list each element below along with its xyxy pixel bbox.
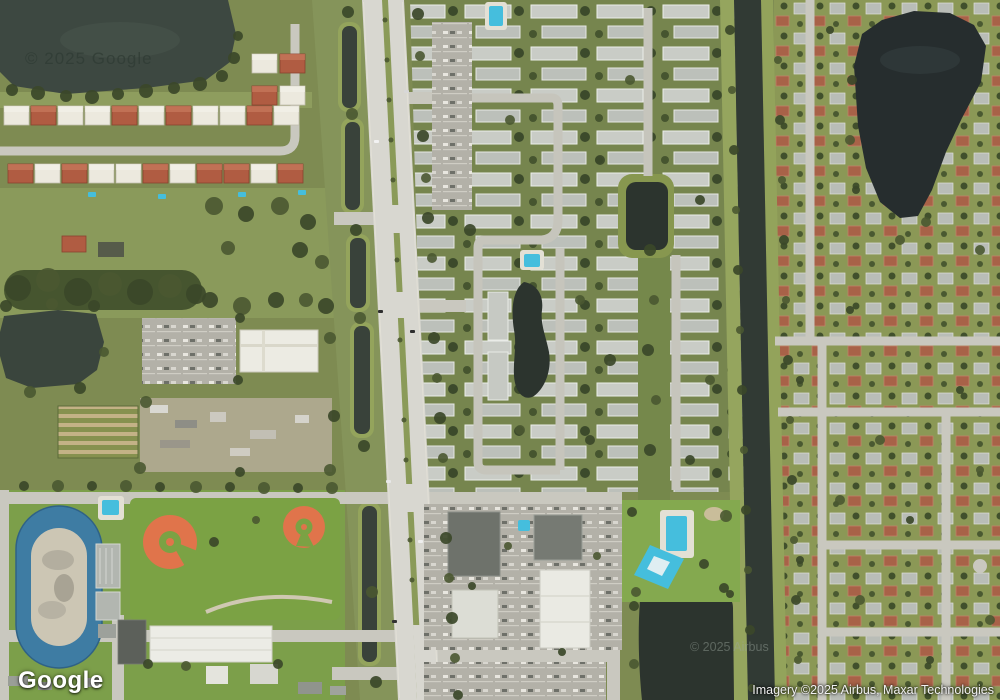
google-logo[interactable]: Google <box>18 667 104 695</box>
construction-yard <box>140 398 332 472</box>
imagery-attribution: Imagery ©2025 Airbus, Maxar Technologies <box>752 683 994 697</box>
condo-pool-north <box>485 2 507 30</box>
church-parking-lot <box>142 318 236 384</box>
track-pool <box>98 496 124 520</box>
barn <box>98 242 124 257</box>
nursery-rows <box>58 406 138 458</box>
condo-pool-center <box>520 250 544 270</box>
baseball-diamond-east <box>283 506 325 548</box>
condo-pond-northeast <box>626 182 668 250</box>
farmhouse <box>62 236 86 252</box>
copyright-watermark-lake: © 2025 Google <box>25 49 153 69</box>
condo-greenway <box>638 228 670 500</box>
condo-parking-lot <box>432 22 472 210</box>
map-viewport[interactable]: © 2025 Google © 2025 Airbus Google Image… <box>0 0 1000 700</box>
park-lap-pool <box>666 516 687 551</box>
satellite-imagery <box>0 0 1000 700</box>
copyright-watermark-pond: © 2025 Airbus <box>690 640 769 654</box>
pond-west <box>0 310 104 388</box>
running-track <box>16 506 102 668</box>
church-building <box>240 330 318 372</box>
lake-top-right-sheen <box>880 46 960 74</box>
houses-row-north <box>4 106 299 125</box>
commercial-parking-south <box>424 662 606 700</box>
